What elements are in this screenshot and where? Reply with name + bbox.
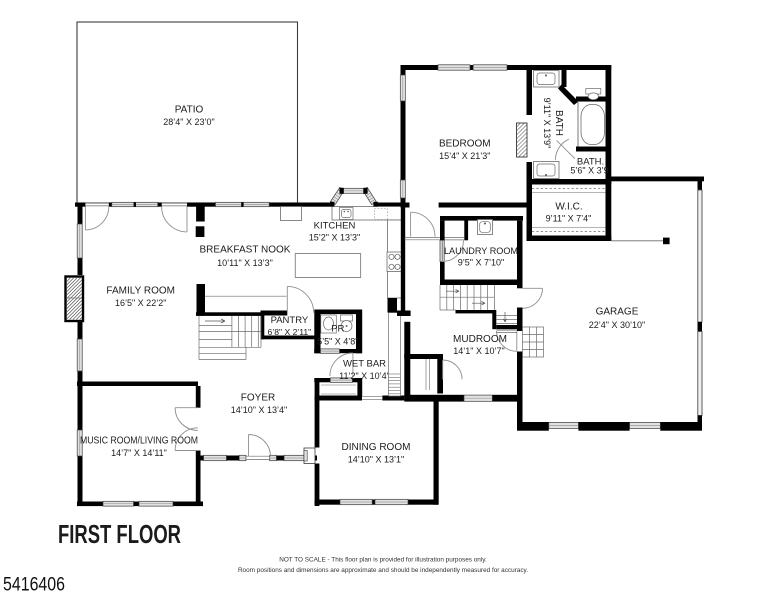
svg-text:15’2" X 13’3": 15’2" X 13’3" <box>309 233 360 243</box>
svg-text:BEDROOM: BEDROOM <box>439 139 491 150</box>
svg-text:14’10" X 13’1": 14’10" X 13’1" <box>348 455 404 465</box>
svg-text:PATIO: PATIO <box>175 105 204 116</box>
svg-text:PANTRY: PANTRY <box>271 315 309 326</box>
svg-text:9’5" X 7’10": 9’5" X 7’10" <box>458 258 504 268</box>
svg-text:KITCHEN: KITCHEN <box>314 221 356 232</box>
svg-text:FOYER: FOYER <box>241 393 275 404</box>
svg-text:5’6" X 3’9: 5’6" X 3’9 <box>570 166 608 176</box>
svg-text:FAMILY ROOM: FAMILY ROOM <box>106 286 175 297</box>
svg-text:5’5" X 4’8": 5’5" X 4’8" <box>317 337 358 347</box>
svg-text:Room positions and dimensions: Room positions and dimensions are approx… <box>238 567 528 574</box>
svg-text:15’4" X 21’3": 15’4" X 21’3" <box>439 151 490 161</box>
svg-text:GARAGE: GARAGE <box>596 307 639 318</box>
svg-text:9’11" X 7’4": 9’11" X 7’4" <box>546 214 592 224</box>
svg-text:11’2" X 10’4": 11’2" X 10’4" <box>339 371 390 381</box>
svg-text:MUDROOM: MUDROOM <box>453 334 507 345</box>
svg-text:5416406: 5416406 <box>3 575 65 594</box>
svg-text:FIRST FLOOR: FIRST FLOOR <box>58 521 181 549</box>
svg-text:14’1" X 10’7": 14’1" X 10’7" <box>453 346 504 356</box>
svg-text:10’11" X 13’3": 10’11" X 13’3" <box>217 258 273 268</box>
svg-text:MUSIC ROOM/LIVING ROOM: MUSIC ROOM/LIVING ROOM <box>80 436 198 447</box>
svg-text:W.I.C.: W.I.C. <box>555 202 582 213</box>
svg-text:BATH: BATH <box>553 110 564 136</box>
svg-text:WET BAR: WET BAR <box>343 359 386 370</box>
svg-text:DINING ROOM: DINING ROOM <box>342 442 411 453</box>
svg-text:14’7" X 14’11": 14’7" X 14’11" <box>111 448 167 458</box>
svg-text:28’4" X 23’0": 28’4" X 23’0" <box>163 117 214 127</box>
svg-text:9’11" X 13’9": 9’11" X 13’9" <box>542 98 552 149</box>
svg-text:16’5" X 22’2": 16’5" X 22’2" <box>115 298 166 308</box>
svg-text:LAUNDRY ROOM: LAUNDRY ROOM <box>444 246 518 257</box>
svg-text:6’8" X 2’11": 6’8" X 2’11" <box>268 327 312 337</box>
svg-text:BREAKFAST NOOK: BREAKFAST NOOK <box>200 245 291 256</box>
svg-text:NOT TO SCALE - This floor plan: NOT TO SCALE - This floor plan is provid… <box>279 557 487 564</box>
svg-text:22’4" X 30’10": 22’4" X 30’10" <box>589 320 645 330</box>
svg-text:PR: PR <box>331 324 344 335</box>
svg-text:14’10" X 13’4": 14’10" X 13’4" <box>231 405 287 415</box>
